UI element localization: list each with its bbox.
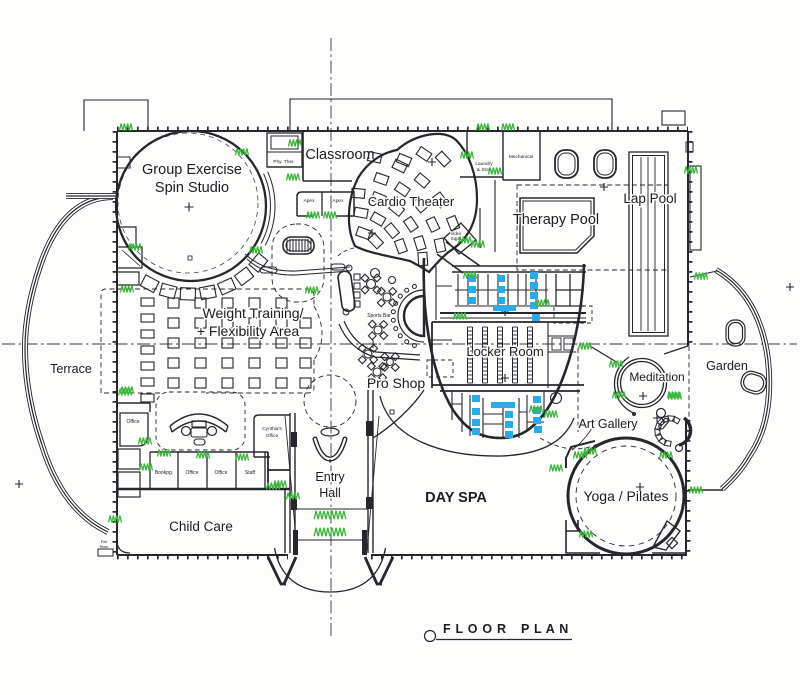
svg-text:Apex: Apex	[333, 198, 345, 204]
svg-text:Fire: Fire	[101, 540, 108, 544]
svg-text:Mechanical: Mechanical	[509, 154, 533, 160]
svg-text:Group Exercise: Group Exercise	[142, 162, 242, 178]
svg-text:Pro Shop: Pro Shop	[367, 375, 426, 391]
svg-text:Bookpg.: Bookpg.	[155, 470, 173, 476]
svg-text:Laundry: Laundry	[475, 161, 493, 167]
svg-text:Phy. Ther.: Phy. Ther.	[273, 159, 294, 165]
svg-text:Yoga / Pilates: Yoga / Pilates	[583, 488, 668, 504]
svg-text:Cardio Theater: Cardio Theater	[368, 194, 455, 209]
svg-text:Office: Office	[127, 419, 140, 425]
svg-text:Entry: Entry	[315, 470, 345, 484]
svg-text:Riser: Riser	[100, 545, 110, 549]
svg-text:Staff: Staff	[245, 470, 256, 476]
svg-text:F L O O R: F L O O R	[443, 622, 507, 636]
svg-text:Meditation: Meditation	[629, 370, 684, 384]
svg-text:Office: Office	[215, 470, 228, 476]
svg-text:Terrace: Terrace	[50, 362, 92, 376]
svg-text:P L A N: P L A N	[521, 622, 569, 636]
svg-text:Apex: Apex	[304, 198, 316, 204]
svg-text:+ Flexibility Area: + Flexibility Area	[197, 323, 300, 339]
svg-text:Therapy Pool: Therapy Pool	[513, 212, 599, 228]
svg-text:Garden: Garden	[706, 359, 748, 373]
svg-text:Weight Training/: Weight Training/	[203, 305, 304, 321]
svg-text:Sports Bar: Sports Bar	[367, 313, 391, 319]
svg-text:Office: Office	[186, 470, 199, 476]
svg-text:Spin Studio: Spin Studio	[155, 180, 229, 196]
svg-text:Hall: Hall	[319, 486, 341, 500]
svg-text:Child Care: Child Care	[169, 519, 233, 534]
svg-text:Cynthia's: Cynthia's	[262, 426, 282, 432]
svg-text:Classroom: Classroom	[305, 147, 374, 163]
svg-text:Locker Room: Locker Room	[466, 344, 543, 359]
svg-text:Art Gallery: Art Gallery	[578, 417, 638, 431]
svg-text:DAY SPA: DAY SPA	[425, 490, 487, 506]
svg-text:Lap Pool: Lap Pool	[623, 191, 676, 206]
svg-text:Office: Office	[266, 433, 279, 439]
